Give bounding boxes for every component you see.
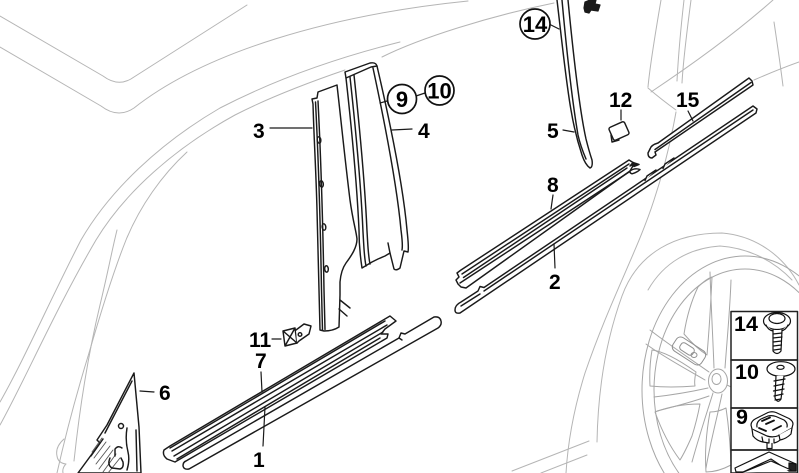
svg-text:15: 15 bbox=[676, 89, 700, 112]
svg-text:10: 10 bbox=[735, 360, 759, 384]
svg-text:11: 11 bbox=[249, 329, 272, 352]
svg-text:9: 9 bbox=[396, 87, 408, 112]
svg-text:12: 12 bbox=[609, 89, 632, 112]
svg-text:10: 10 bbox=[427, 79, 451, 104]
svg-text:9: 9 bbox=[736, 405, 748, 429]
svg-text:14: 14 bbox=[523, 12, 548, 37]
svg-text:8: 8 bbox=[547, 174, 559, 197]
svg-text:14: 14 bbox=[734, 312, 758, 336]
svg-text:3: 3 bbox=[253, 120, 265, 143]
svg-text:1: 1 bbox=[253, 449, 265, 472]
svg-text:2: 2 bbox=[549, 271, 561, 294]
svg-text:7: 7 bbox=[255, 350, 267, 373]
svg-text:6: 6 bbox=[159, 382, 171, 405]
svg-text:4: 4 bbox=[418, 120, 430, 143]
svg-text:5: 5 bbox=[547, 120, 559, 143]
